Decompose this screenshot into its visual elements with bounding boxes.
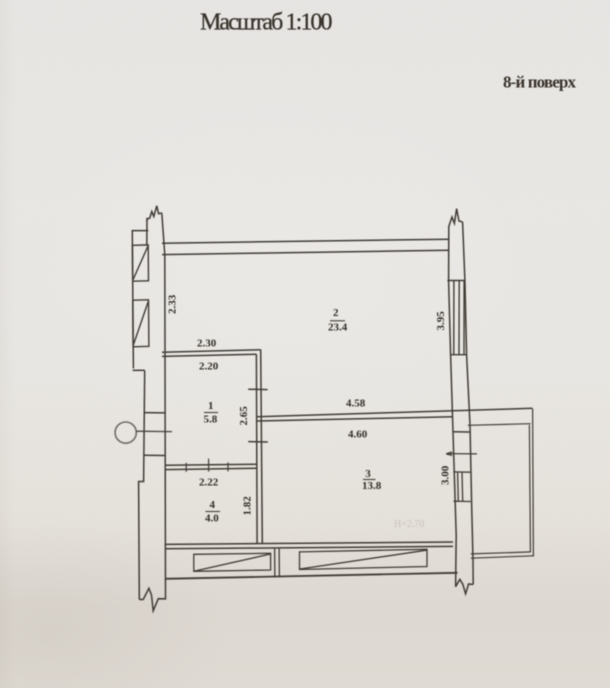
svg-text:4.58: 4.58 — [346, 398, 366, 410]
svg-text:2.33: 2.33 — [167, 294, 179, 314]
svg-text:3: 3 — [365, 468, 371, 480]
svg-text:3.95: 3.95 — [435, 311, 447, 331]
svg-text:4.60: 4.60 — [348, 429, 368, 441]
svg-text:13.8: 13.8 — [362, 480, 382, 492]
svg-text:4: 4 — [210, 499, 216, 511]
svg-text:23.4: 23.4 — [328, 322, 348, 334]
svg-text:Н=2.70: Н=2.70 — [394, 519, 424, 530]
svg-text:2.30: 2.30 — [197, 338, 217, 350]
svg-text:2.22: 2.22 — [199, 477, 219, 489]
svg-text:1: 1 — [208, 400, 214, 412]
svg-text:2: 2 — [333, 307, 339, 319]
svg-text:5.8: 5.8 — [204, 414, 218, 426]
svg-text:1.82: 1.82 — [242, 496, 254, 516]
svg-text:Масштаб 1:100: Масштаб 1:100 — [200, 10, 333, 36]
svg-text:8-й поверх: 8-й поверх — [503, 73, 577, 92]
svg-text:2.20: 2.20 — [199, 361, 219, 373]
svg-text:3.00: 3.00 — [440, 465, 452, 485]
svg-text:4.0: 4.0 — [205, 513, 219, 525]
svg-text:2.65: 2.65 — [238, 406, 250, 426]
